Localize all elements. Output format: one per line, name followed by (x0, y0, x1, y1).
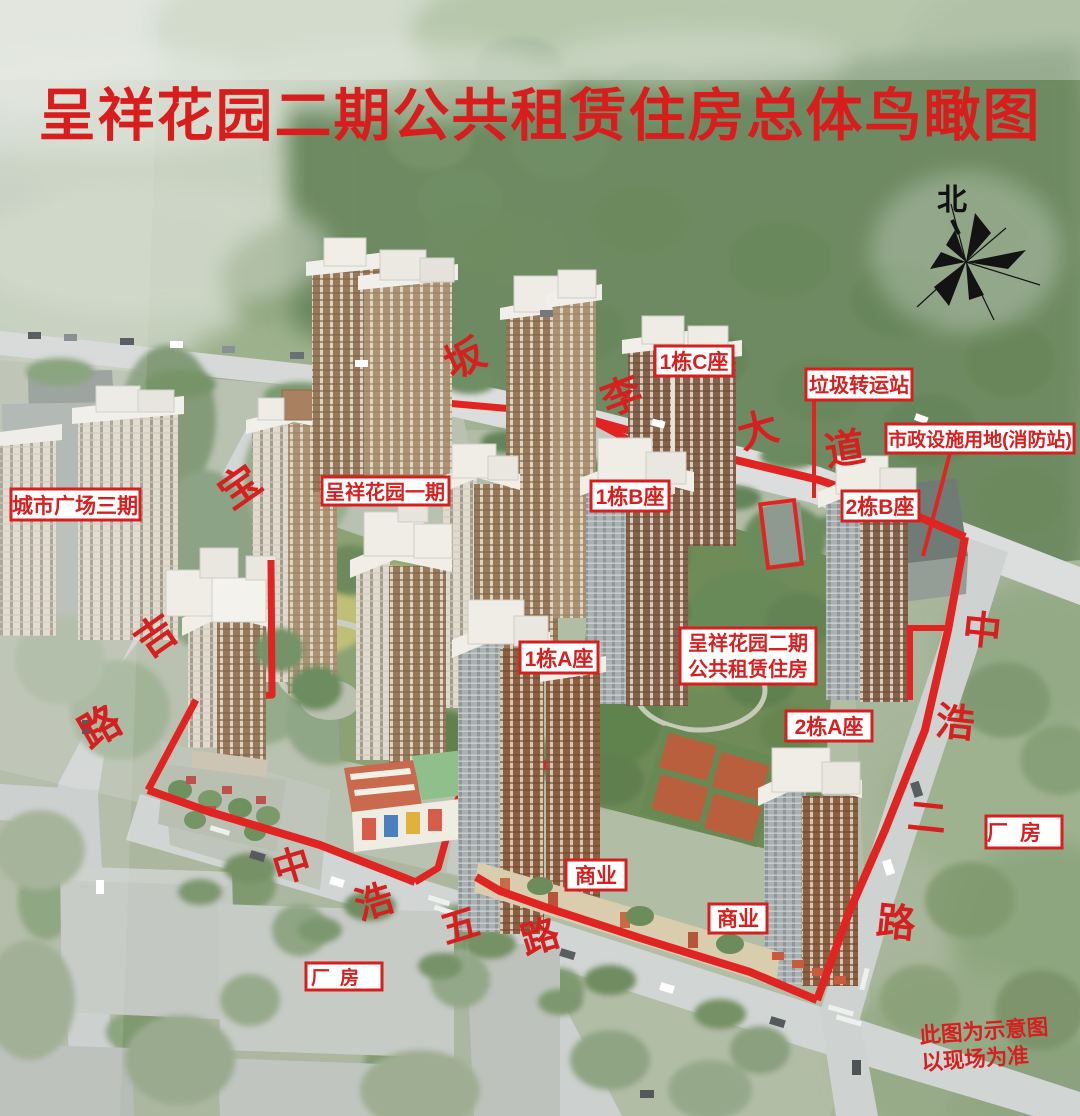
svg-text:呈祥花园一期: 呈祥花园一期 (325, 480, 445, 504)
svg-text:城市广场三期: 城市广场三期 (12, 494, 138, 518)
svg-text:2栋A座: 2栋A座 (795, 715, 864, 739)
svg-text:垃圾转运站: 垃圾转运站 (809, 373, 909, 397)
svg-text:商业: 商业 (575, 864, 617, 888)
svg-text:2栋B座: 2栋B座 (846, 495, 915, 519)
svg-text:路: 路 (874, 900, 918, 947)
svg-text:厂房: 厂房 (987, 821, 1053, 845)
svg-text:厂房: 厂房 (311, 966, 369, 989)
svg-text:二: 二 (905, 795, 948, 842)
svg-text:呈祥花园二期公共租赁住房总体鸟瞰图: 呈祥花园二期公共租赁住房总体鸟瞰图 (39, 84, 1042, 148)
svg-text:1栋C座: 1栋C座 (660, 350, 729, 374)
svg-text:呈祥花园二期: 呈祥花园二期 (688, 631, 808, 655)
svg-text:北: 北 (937, 184, 967, 217)
svg-text:公共租赁住房: 公共租赁住房 (688, 657, 808, 681)
svg-text:1栋A座: 1栋A座 (525, 647, 594, 671)
svg-text:市政设施用地(消防站): 市政设施用地(消防站) (888, 428, 1072, 451)
svg-text:道: 道 (822, 425, 868, 475)
svg-text:1栋B座: 1栋B座 (596, 485, 665, 509)
svg-text:浩: 浩 (933, 700, 976, 747)
svg-text:商业: 商业 (717, 907, 759, 931)
svg-text:中: 中 (960, 608, 1003, 655)
